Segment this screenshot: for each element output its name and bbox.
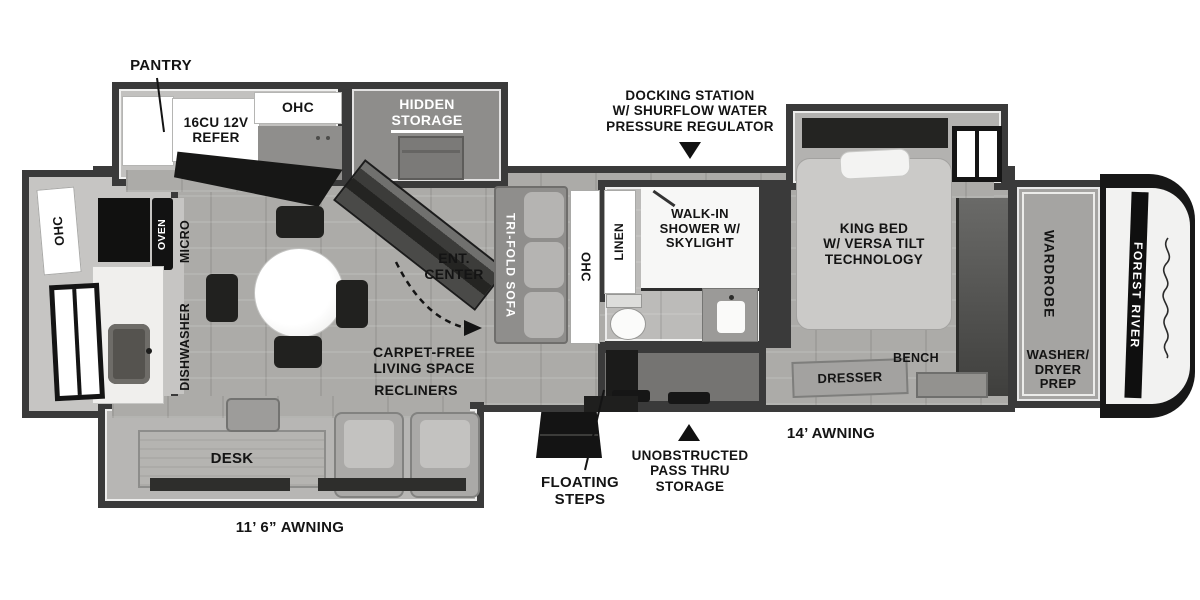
recliners-label: RECLINERS [374,383,458,399]
hidden-storage-step-line [402,150,460,153]
walk-in-shower: WALK-IN SHOWER W/ SKYLIGHT [641,187,759,291]
pantry-cabinet [122,96,174,166]
kitchen-sink [108,324,150,384]
floor-vent [150,478,290,491]
docking-label-box: DOCKING STATION W/ SHURFLOW WATER PRESSU… [592,86,788,136]
micro-label: MICRO [178,220,192,263]
pantry-label: PANTRY [130,58,192,75]
linen-label: LINEN [613,223,626,261]
tri-fold-sofa: TRI-FOLD SOFA [494,186,568,344]
recliner-seat [420,420,470,468]
dining-chair [276,206,324,238]
recliner-seat [344,420,394,468]
up-arrow-icon [678,424,700,441]
burner [316,136,320,140]
floor-vent [318,478,466,491]
ent-center-label-box: ENT. CENTER [408,248,500,286]
shower-label: WALK-IN SHOWER W/ SKYLIGHT [660,207,741,251]
bench [916,372,988,398]
bench-label: BENCH [893,351,939,365]
sofa-cushion [524,292,564,338]
bedroom-window [952,126,1002,182]
refer-label: 16CU 12V REFER [184,115,249,145]
rear-ohc-label: OHC [50,216,67,247]
front-cap-band: FOREST RIVER [1106,188,1190,404]
awning-rear-label-box: 11’ 6” AWNING [218,518,362,538]
awning-front-label: 14’ AWNING [787,426,875,443]
dishwasher: DISHWASHER [174,288,196,406]
bath-vanity [702,288,758,342]
bedroom-closet [956,198,1008,396]
dining-chair [206,274,238,322]
headboard-shelf [802,118,948,148]
hidden-storage-label-box: HIDDEN STORAGE [352,92,502,138]
step-tread-line [540,434,598,436]
hidden-storage-label: HIDDEN STORAGE [391,97,462,133]
floating-steps-label: FLOATING STEPS [541,475,619,509]
docking-station-label: DOCKING STATION W/ SHURFLOW WATER PRESSU… [606,88,774,133]
rear-window [49,283,105,401]
dining-table [254,248,344,338]
sink-faucet [146,348,152,354]
burner [326,136,330,140]
pass-thru-label: UNOBSTRUCTED PASS THRU STORAGE [632,448,749,493]
toilet-tank [606,294,642,308]
oven: OVEN [152,198,173,270]
bench-label-box: BENCH [880,350,952,366]
floor-hatch [668,392,710,404]
entry-door-threshold [584,396,638,412]
wardrobe-label-box: WARDROBE [1030,200,1068,348]
washer-dryer-label-box: WASHER/ DRYER PREP [1014,344,1102,396]
sofa-cushion [524,192,564,238]
vanity-faucet [729,295,734,300]
sofa-label-box: TRI-FOLD SOFA [496,188,524,342]
king-bed-label: KING BED W/ VERSA TILT TECHNOLOGY [823,221,924,266]
hall-ohc-cabinet: OHC [570,190,600,344]
dishwasher-label: DISHWASHER [178,303,192,391]
hall-ohc-label: OHC [578,252,593,282]
linen-cabinet: LINEN [604,190,636,294]
kitchen-ohc-label: OHC [282,100,314,116]
kitchen-ohc-cabinet: OHC [254,92,342,124]
desk-label: DESK [211,451,254,468]
tri-fold-sofa-label: TRI-FOLD SOFA [503,213,516,318]
shower-label-box: WALK-IN SHOWER W/ SKYLIGHT [645,201,755,257]
king-bed-label-box: KING BED W/ VERSA TILT TECHNOLOGY [800,218,948,270]
carpet-free-label: CARPET-FREE LIVING SPACE [373,345,475,376]
rear-ohc-cabinet: OHC [36,187,81,276]
window-mullion [72,289,82,395]
awning-front-label-box: 14’ AWNING [776,424,886,444]
pantry-label-box: PANTRY [118,56,204,76]
desk-chair [226,398,280,432]
ent-center-label: ENT. CENTER [424,251,483,282]
dining-chair [274,336,322,368]
awning-rear-label: 11’ 6” AWNING [236,520,344,537]
vanity-sink [717,301,745,333]
down-arrow-icon [679,142,701,159]
microwave: MICRO [174,200,196,284]
washer-dryer-label: WASHER/ DRYER PREP [1027,348,1090,392]
toilet [610,308,646,340]
brand-stripe: FOREST RIVER [1124,192,1148,398]
front-cap: FOREST RIVER [1100,174,1195,418]
dining-chair [336,280,368,328]
recliners-label-box: RECLINERS [352,382,480,400]
sofa-cushion [524,242,564,288]
hidden-storage-steps [398,136,464,180]
carpet-free-label-box: CARPET-FREE LIVING SPACE [350,344,498,378]
floorplan-canvas: HIDDEN STORAGE FOREST RIVER OHC OVEN MIC… [0,0,1200,600]
bed-pillow [839,148,910,180]
brand-label: FOREST RIVER [1128,241,1146,348]
oven-label: OVEN [157,219,169,250]
kitchen-range [98,198,150,262]
floating-steps [536,412,602,458]
wardrobe-label: WARDROBE [1041,230,1056,318]
wildwood-script-logo [1154,232,1182,362]
refrigerator: 16CU 12V REFER [172,98,260,162]
floating-steps-label-box: FLOATING STEPS [518,472,642,512]
dresser-label: DRESSER [817,370,882,387]
window-mullion [975,131,979,177]
